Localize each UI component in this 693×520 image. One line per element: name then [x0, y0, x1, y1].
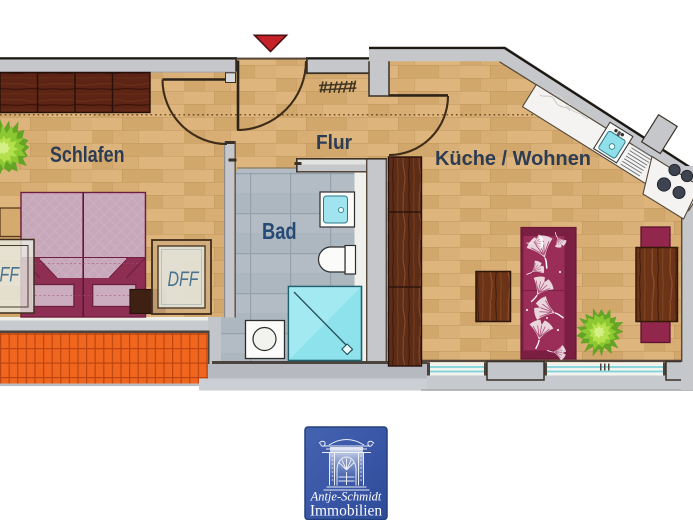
svg-text:DFF: DFF — [168, 268, 200, 291]
svg-text:DFF: DFF — [0, 264, 20, 287]
svg-text:Flur: Flur — [316, 131, 352, 154]
svg-text:Antje-Schmidt: Antje-Schmidt — [310, 490, 382, 504]
svg-text:Schlafen: Schlafen — [50, 142, 125, 167]
svg-text:Bad: Bad — [262, 218, 297, 244]
svg-text:Immobilien: Immobilien — [310, 503, 383, 520]
svg-text:Küche / Wohnen: Küche / Wohnen — [435, 147, 591, 170]
